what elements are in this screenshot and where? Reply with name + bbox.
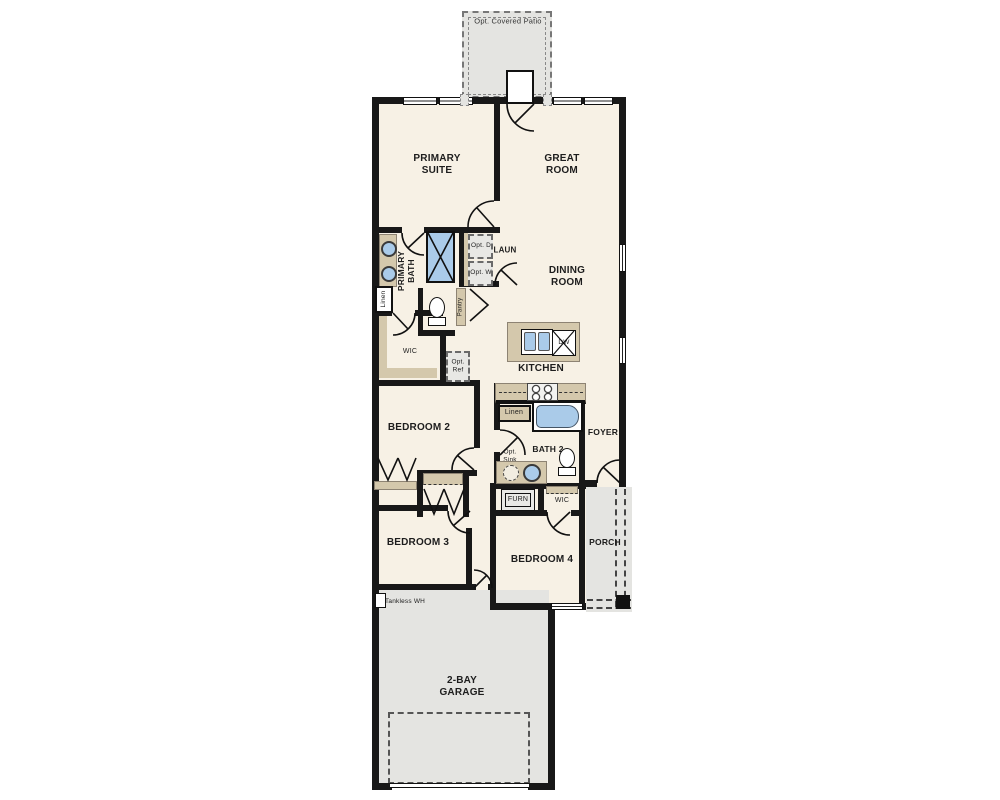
laundry-label: LAUN [493, 245, 516, 254]
porch-label: PORCH [589, 537, 621, 547]
garage-dashed-bay [388, 712, 530, 784]
furnace-label: FURN [508, 496, 528, 504]
window [551, 603, 583, 610]
wall [372, 505, 448, 511]
wall [619, 97, 626, 487]
wall [372, 97, 379, 790]
bedroom4-label: BEDROOM 4 [497, 554, 587, 566]
bathtub-basin [536, 405, 579, 428]
counter-dash [499, 392, 526, 393]
wall [474, 386, 480, 448]
bed2-closet-shelf [423, 473, 463, 485]
island-sink-basin [524, 332, 536, 351]
window [619, 337, 626, 364]
floor-plan: Opt. Covered Patio PORCH 2-BAY GARAGE [0, 0, 1000, 800]
toilet [429, 297, 445, 318]
wall [418, 330, 455, 336]
bed2-left-closet-shelf [374, 481, 417, 490]
range [527, 383, 558, 401]
great-room-label: GREAT ROOM [539, 153, 585, 177]
wall [372, 783, 392, 790]
garage-door [390, 783, 529, 788]
wall [494, 104, 500, 201]
linen-primary-label: Linen [380, 291, 388, 308]
window [553, 97, 582, 105]
wall [585, 480, 597, 487]
patio-entry-vestibule [506, 70, 534, 104]
patio-label: Opt. Covered Patio [463, 18, 553, 27]
primary-bath-label: PRIMARY BATH [396, 245, 416, 297]
wall [528, 783, 555, 790]
primary-suite-label: PRIMARY SUITE [407, 153, 467, 177]
opt-sink-dashed [503, 465, 519, 481]
wall [466, 528, 472, 586]
island-sink-basin [538, 332, 550, 351]
opt-fridge-label: Opt. Ref [447, 358, 469, 373]
bedroom3-label: BEDROOM 3 [373, 537, 463, 549]
garage-label: 2-BAY GARAGE [431, 675, 493, 699]
dishwasher-label: DW [557, 339, 570, 347]
wall [490, 483, 496, 610]
wall [463, 470, 469, 517]
window [403, 97, 437, 105]
patio-post-dash [460, 94, 469, 106]
shower [426, 231, 455, 283]
wic-shelf [379, 316, 387, 376]
window [584, 97, 613, 105]
toilet-tank [428, 317, 446, 326]
wic2-shelf [546, 486, 578, 494]
counter-dash [559, 392, 583, 393]
porch-dashed-columns [615, 489, 626, 607]
toilet [559, 448, 575, 468]
wic-primary-label: WIC [403, 348, 417, 356]
opt-dryer-label: Opt. D [470, 242, 492, 250]
kitchen-label: KITCHEN [518, 363, 564, 375]
wall [548, 610, 555, 790]
wall [538, 483, 544, 513]
dining-room-label: DINING ROOM [545, 265, 589, 289]
wall [372, 584, 472, 590]
wic-bedroom4-label: WIC [555, 497, 569, 505]
sink [381, 266, 397, 282]
patio-post-dash [543, 94, 552, 106]
window [619, 244, 626, 272]
wic-shelf [379, 368, 437, 378]
foyer-label: FOYER [588, 427, 618, 437]
opt-washer-label: Opt. W [470, 269, 492, 277]
wall [579, 483, 585, 610]
linen-bath2-label: Linen [505, 409, 523, 417]
pantry-label: Pantry [457, 298, 464, 317]
toilet-tank [558, 467, 576, 476]
tankless-label: Tankless WH [383, 598, 427, 606]
wall [466, 584, 476, 590]
porch-column [616, 595, 630, 609]
bedroom2-label: BEDROOM 2 [374, 422, 464, 434]
sink [381, 241, 397, 257]
sink [523, 464, 541, 482]
wall [372, 227, 402, 233]
